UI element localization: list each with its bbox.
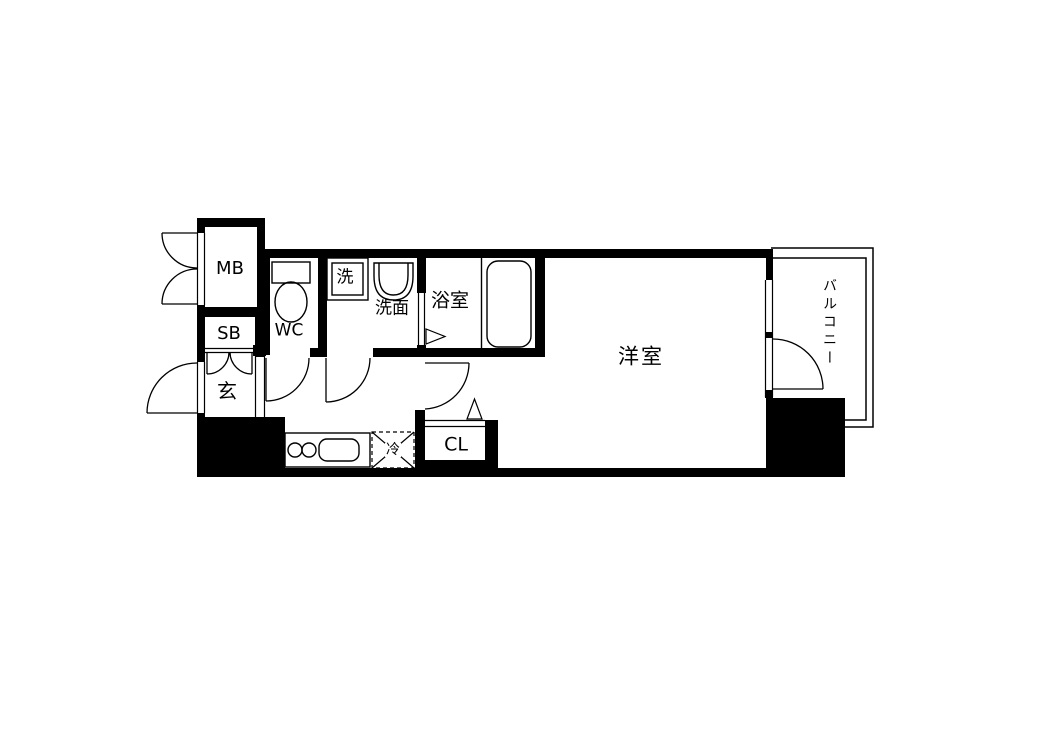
label-bathroom: 浴室 [431, 292, 469, 311]
door-swings [147, 233, 823, 413]
closet-door-triangle [467, 399, 482, 419]
mb-door-swing-lower [162, 269, 197, 304]
balcony-door-swing [773, 339, 823, 389]
label-toilet: WC [275, 323, 304, 340]
entrance-hall-partition [256, 356, 265, 417]
label-shoe-box: SB [217, 325, 241, 343]
bathroom-door-triangle [426, 329, 445, 344]
western-room-door-swing [425, 363, 469, 409]
label-closet: CL [444, 436, 468, 455]
shoe-box-door-swing-left [207, 352, 229, 374]
entrance-door-swing [147, 363, 197, 413]
label-western-room: 洋室 [618, 347, 664, 368]
label-refrigerator: 冷 [385, 443, 401, 457]
bathtub [487, 261, 531, 347]
shoe-box-sill [205, 349, 255, 353]
shoe-box-door-swing-right [230, 352, 252, 374]
door-triangles [426, 329, 482, 419]
mb-door-swing-upper [162, 233, 197, 268]
label-balcony: バルコニー [822, 278, 836, 368]
label-meter-box: MB [216, 260, 244, 278]
floor-plan-drawing [0, 0, 1040, 745]
entrance-door-frame [198, 362, 205, 413]
mb-door-frame [198, 233, 205, 305]
label-washroom: 洗面 [375, 301, 409, 318]
label-washer: 洗 [337, 270, 354, 287]
floor-plan: MB SB 玄 WC 洗 洗面 浴室 洋室 CL 冷 バルコニー [0, 0, 1040, 745]
wc-door-swing [266, 358, 309, 401]
toilet-tank [272, 262, 310, 283]
toilet-bowl [275, 282, 307, 322]
wash-basin-inner [379, 263, 408, 295]
closet-door-line [425, 421, 485, 427]
bathroom-door-frame [419, 293, 425, 345]
balcony-window-frame [766, 280, 773, 397]
kitchen-counter [285, 433, 370, 467]
washroom-door-swing [326, 358, 370, 402]
label-entrance: 玄 [217, 381, 237, 401]
